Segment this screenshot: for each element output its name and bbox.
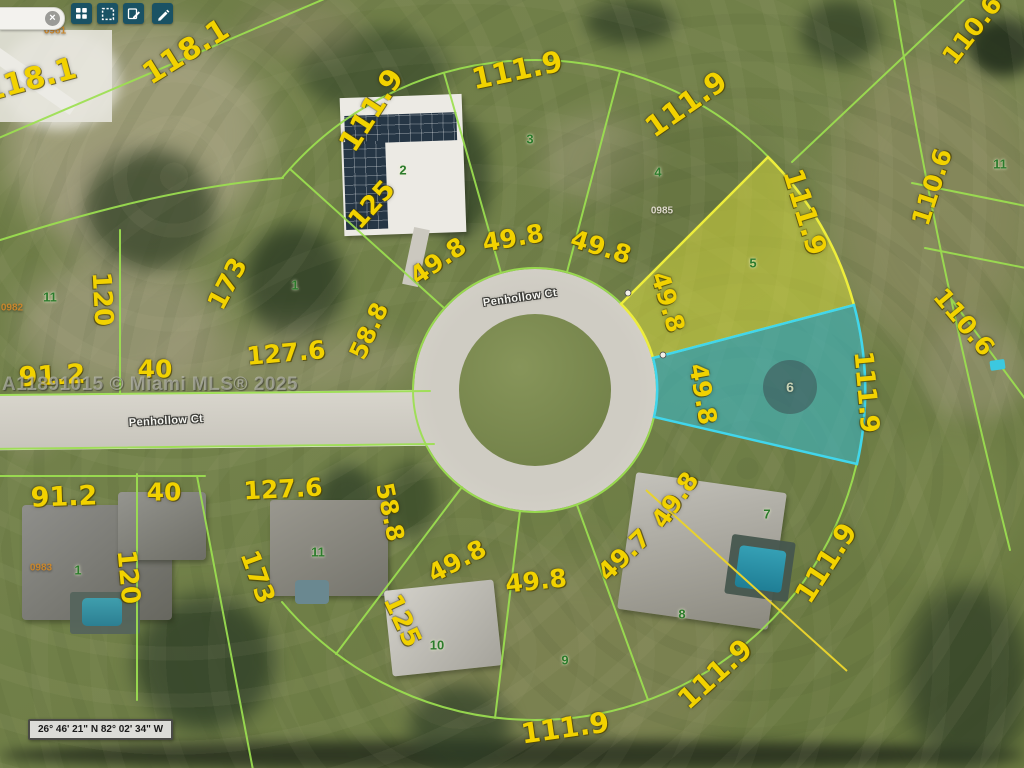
dimension-label: 49.7 [592,523,657,587]
dimension-label: 125 [343,175,402,235]
dimension-label: 49.8 [645,466,704,533]
lot-number: 2 [399,163,406,178]
edit-notes-button[interactable] [123,3,144,24]
dimension-label: 110.6 [906,145,958,229]
lot-number: 4 [654,165,661,180]
dimension-label: 111.9 [776,165,833,259]
dimension-label: 118.1 [136,12,235,92]
dimension-label: 49.8 [404,231,471,290]
marquee-icon [101,7,115,21]
dimension-label: 127.6 [245,335,326,371]
dimension-label: 49.8 [567,224,634,270]
street-label: Penhollow Ct [482,287,557,309]
dimension-label: 58.8 [370,480,410,544]
dimension-label: 111.9 [788,517,864,609]
dimension-label: 110.6 [936,0,1008,70]
street-label: Penhollow Ct [129,413,204,429]
grid-view-button[interactable] [71,3,92,24]
lot-number: 9 [561,653,568,668]
dimension-label: 49.8 [480,218,546,257]
lot-number: 6 [786,379,794,395]
dimension-label: 173 [202,253,254,315]
dimension-label: 110.6 [927,282,1000,361]
dimension-label: 111.9 [639,64,734,144]
dimension-label: 91.2 [30,480,98,513]
dimension-label: 120 [86,271,119,327]
grid-icon [75,7,88,20]
lot-number: 8 [678,607,685,622]
lot-number: 11 [993,157,1007,172]
dimension-label: 118.1 [0,51,80,109]
lot-number: 5 [749,256,756,271]
clear-search-button[interactable]: × [45,11,60,26]
lot-number: 7 [763,507,770,522]
aerial-parcel-map: 118.1118.1111.9111.9111.9111.9110.6110.6… [0,0,1024,768]
lot-number: 1 [291,278,298,293]
mls-watermark: A11891015 © Miami MLS® 2025 [2,374,298,396]
dimension-label: 49.8 [423,534,491,589]
dimension-label: 173 [234,546,281,607]
dimension-label: 111.9 [671,632,759,716]
dimension-label: 49.8 [504,563,568,598]
lot-number: 1 [74,563,81,578]
lot-number: 11 [43,290,57,305]
dimension-label: 120 [111,549,146,606]
dimension-label: 49.8 [683,361,722,427]
search-bar[interactable]: × [0,7,65,30]
dimension-label: 111.9 [847,350,884,435]
lot-number: 11 [311,545,325,560]
select-area-button[interactable] [97,3,118,24]
dimension-label: 125 [377,590,427,652]
dimension-label: 40 [147,478,182,507]
ruler-pencil-icon [156,7,170,21]
dimension-label: 111.9 [469,44,566,96]
dimension-label: 111.9 [519,705,611,750]
gps-coordinates-bar: 26° 46' 21" N 82° 02' 34" W [28,719,173,740]
note-edit-icon [127,7,141,21]
parcel-id: 0985 [651,206,673,217]
lot-number: 3 [526,132,533,147]
dimension-label: 58.8 [344,298,394,364]
measure-button[interactable] [152,3,173,24]
lot-number: 10 [430,638,444,653]
dimension-label: 127.6 [243,472,323,505]
dimension-label: 49.8 [645,268,691,335]
parcel-id: 0983 [30,563,52,574]
dimension-label: 111.9 [332,62,410,157]
parcel-id: 0982 [1,303,23,314]
